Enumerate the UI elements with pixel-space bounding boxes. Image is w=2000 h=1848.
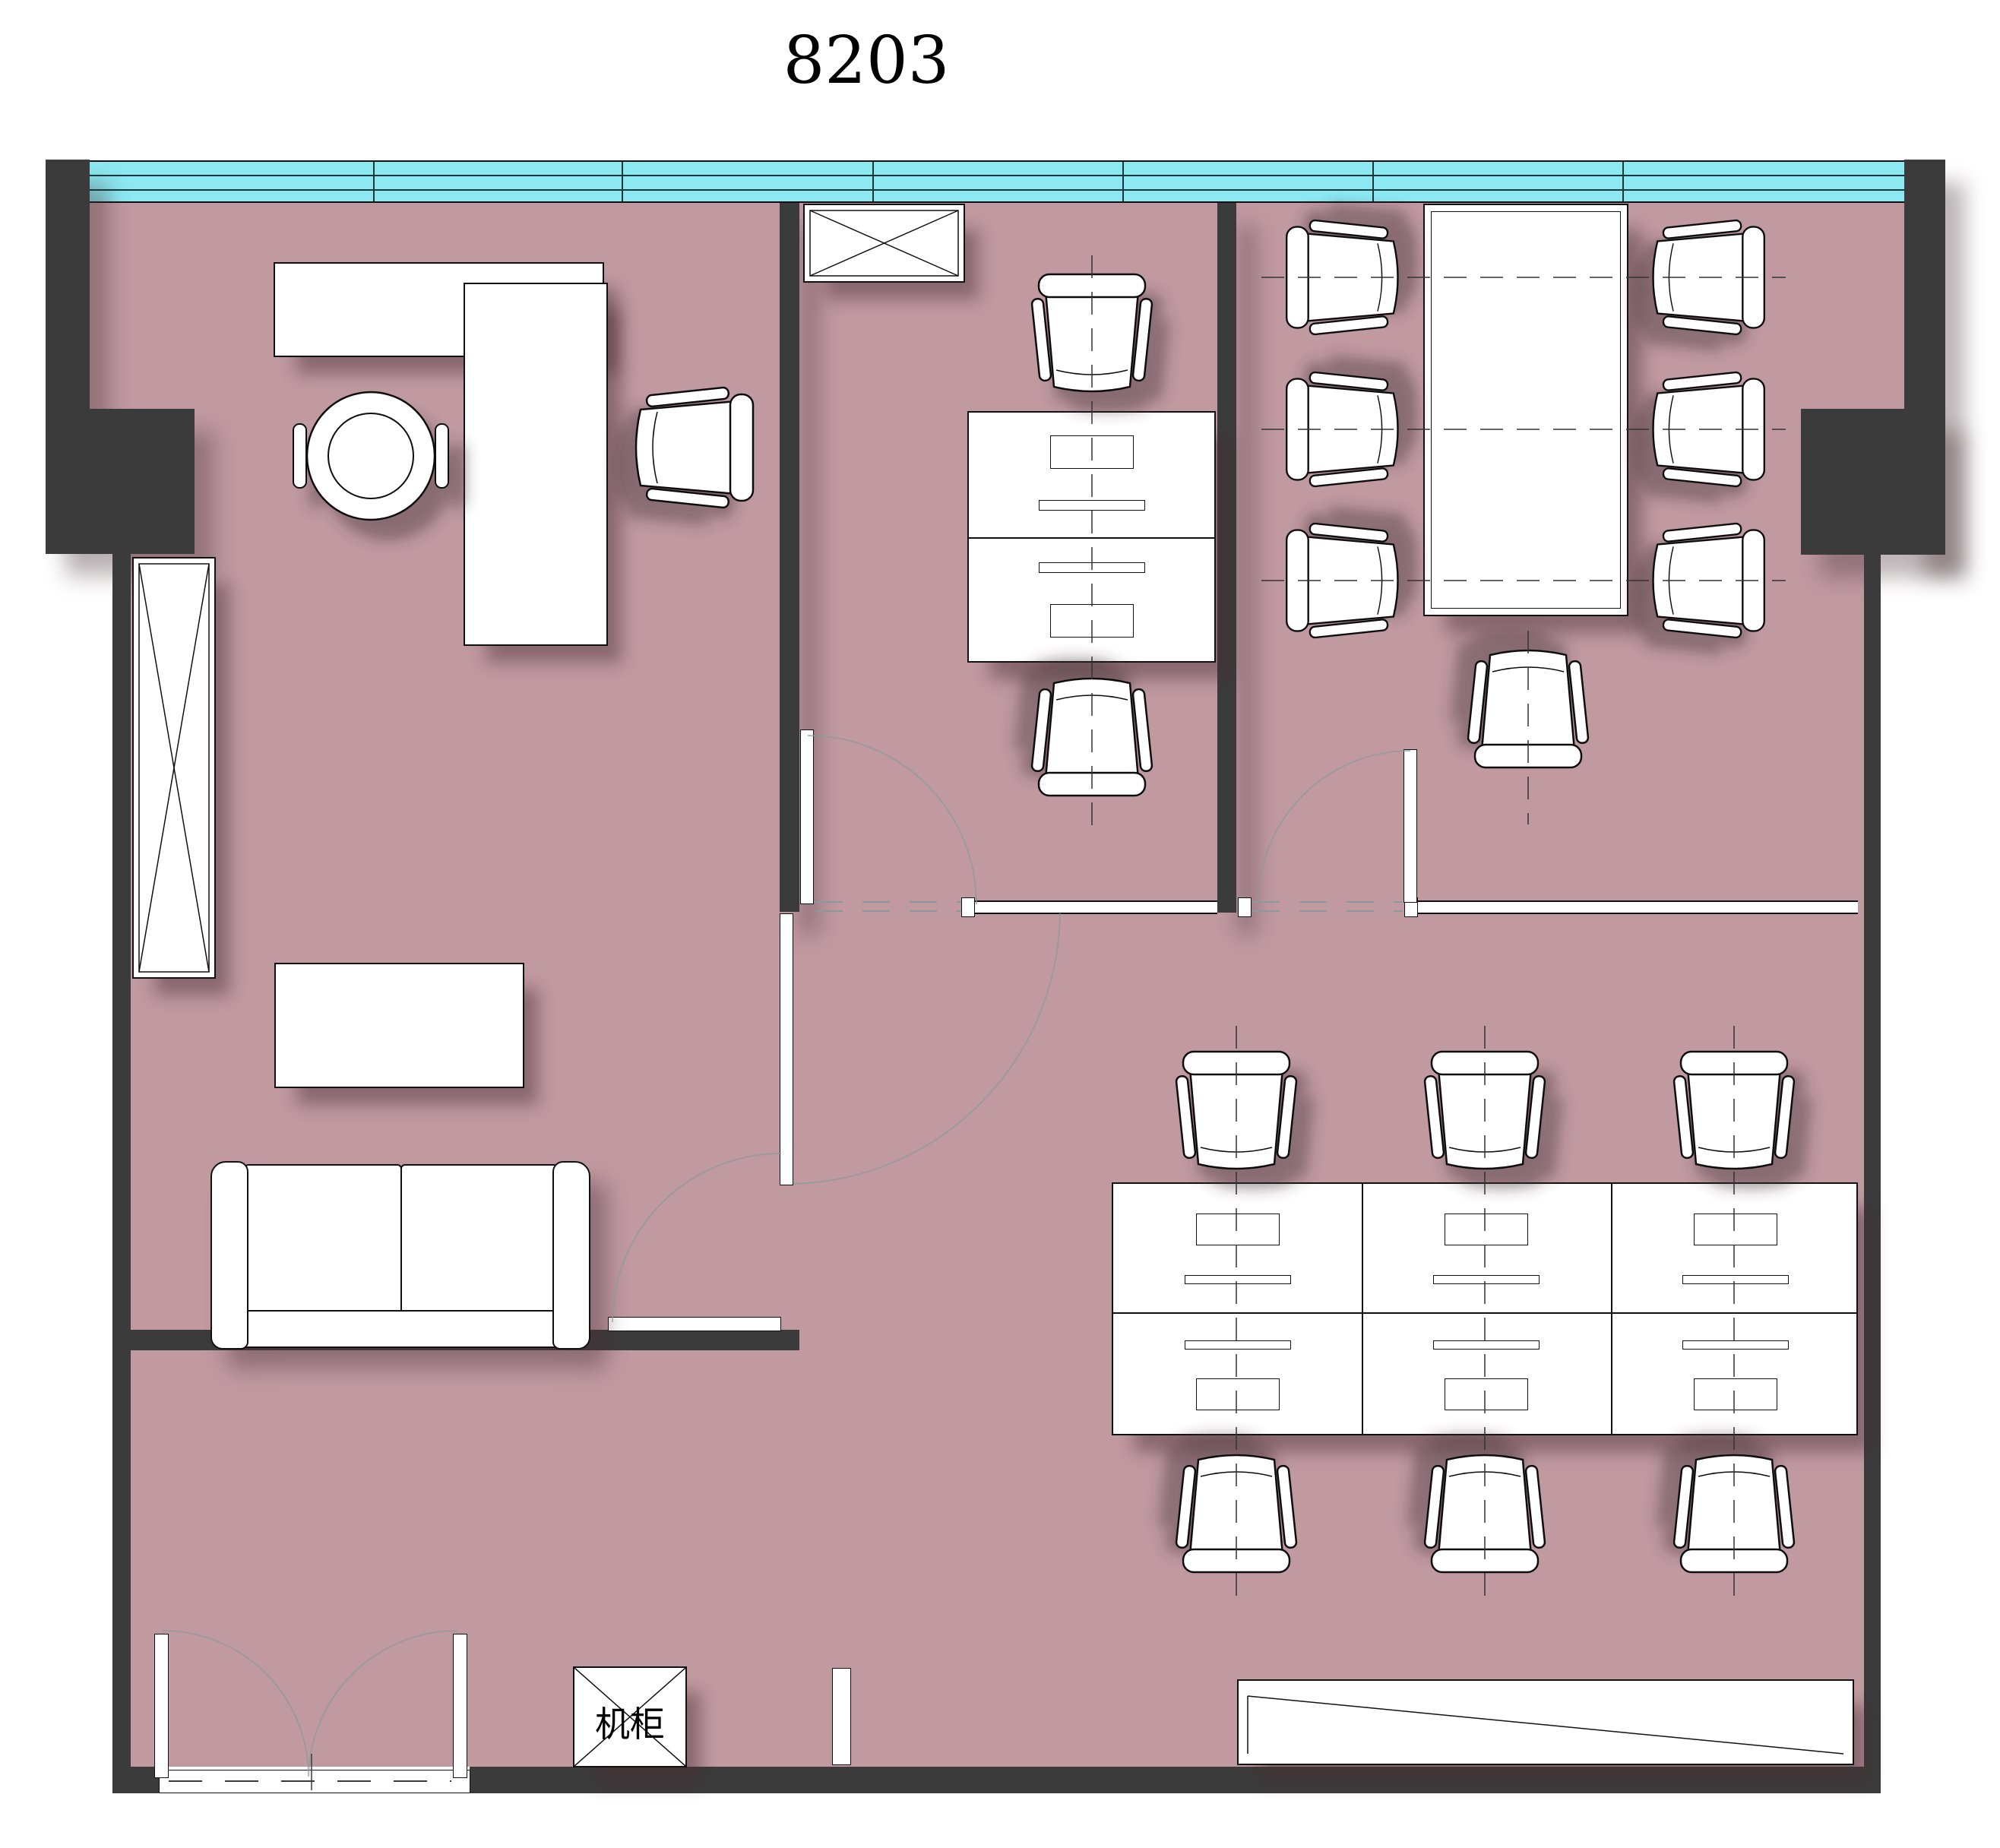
window-band	[90, 160, 1904, 203]
door-jamb	[961, 897, 975, 917]
wall-right	[1864, 555, 1881, 1793]
desk-slot	[1682, 1340, 1789, 1350]
window-mullion	[1372, 162, 1374, 201]
server-cabinet: 机柜	[573, 1666, 687, 1767]
entry-door-leaf-left	[154, 1634, 169, 1778]
entry-threshold	[159, 1770, 470, 1793]
window-rail	[90, 175, 1904, 176]
wall-meeting-room-left	[1217, 203, 1236, 913]
wall-left	[112, 523, 131, 1793]
plan-title: 8203	[775, 23, 957, 99]
sofa-armrest	[552, 1161, 590, 1350]
window-mullion	[872, 162, 874, 201]
window-mullion	[622, 162, 623, 201]
entry-door-leaf-right	[453, 1634, 467, 1778]
double-desk	[967, 411, 1216, 663]
coat-cabinet	[803, 204, 965, 283]
workstation-block	[1112, 1182, 1858, 1435]
desk-drawer	[1050, 604, 1134, 638]
sofa-cushion	[400, 1164, 559, 1321]
desk-slot	[1433, 1340, 1540, 1350]
workstation-divider-v	[1362, 1184, 1363, 1434]
desk-drawer	[1694, 1378, 1777, 1410]
desk-slot	[1039, 500, 1145, 511]
window-mullion	[373, 162, 375, 201]
cabinet-x-icon	[805, 205, 964, 281]
desk-slot	[1185, 1340, 1291, 1350]
window-rail	[90, 189, 1904, 191]
wall-bottom	[470, 1767, 1881, 1793]
glass-partition-middle	[975, 900, 1217, 914]
desk-drawer	[1694, 1214, 1777, 1245]
sofa	[210, 1161, 590, 1354]
manager-desk	[464, 283, 608, 646]
door-leaf-middle-office	[800, 729, 814, 904]
wall-bump-right	[1801, 409, 1945, 555]
door-leaf-manager-office	[780, 913, 793, 1185]
storage-cabinet	[132, 557, 216, 979]
conference-table	[1423, 204, 1628, 616]
door-jamb	[1238, 897, 1252, 917]
cabinet-x-icon	[134, 559, 214, 977]
sofa-cushion	[244, 1164, 402, 1321]
corridor-end-post	[832, 1668, 851, 1765]
sofa-backrest	[239, 1310, 562, 1348]
glass-partition-right	[1418, 900, 1858, 914]
window-mullion	[1622, 162, 1624, 201]
desk-drawer	[1196, 1214, 1280, 1245]
conference-table-inner	[1431, 211, 1621, 609]
reception-counter	[1237, 1679, 1854, 1765]
coffee-table	[274, 963, 524, 1088]
workstation-divider-h	[1113, 1312, 1856, 1314]
workstation-divider-v	[1611, 1184, 1612, 1434]
floor-plan-8203: 8203	[0, 0, 2000, 1848]
counter-wedge-icon	[1239, 1681, 1853, 1764]
desk-drawer	[1445, 1378, 1528, 1410]
sliding-panel-manager-office	[608, 1317, 781, 1331]
desk-drawer	[1050, 435, 1134, 469]
desk-slot	[1433, 1275, 1540, 1284]
desk-slot	[1682, 1275, 1789, 1284]
door-leaf-meeting-room	[1403, 749, 1417, 903]
desk-slot	[1039, 562, 1145, 573]
desk-drawer	[1445, 1214, 1528, 1245]
server-cabinet-label: 机柜	[574, 1697, 685, 1747]
window-mullion	[1122, 162, 1124, 201]
wall-manager-office-right	[780, 203, 799, 912]
sofa-armrest	[210, 1161, 248, 1350]
wall-bottom-left-stub	[112, 1767, 160, 1793]
desk-drawer	[1196, 1378, 1280, 1410]
desk-slot	[1185, 1275, 1291, 1284]
floor-lower	[129, 554, 1864, 1767]
desk-divider	[969, 537, 1214, 539]
